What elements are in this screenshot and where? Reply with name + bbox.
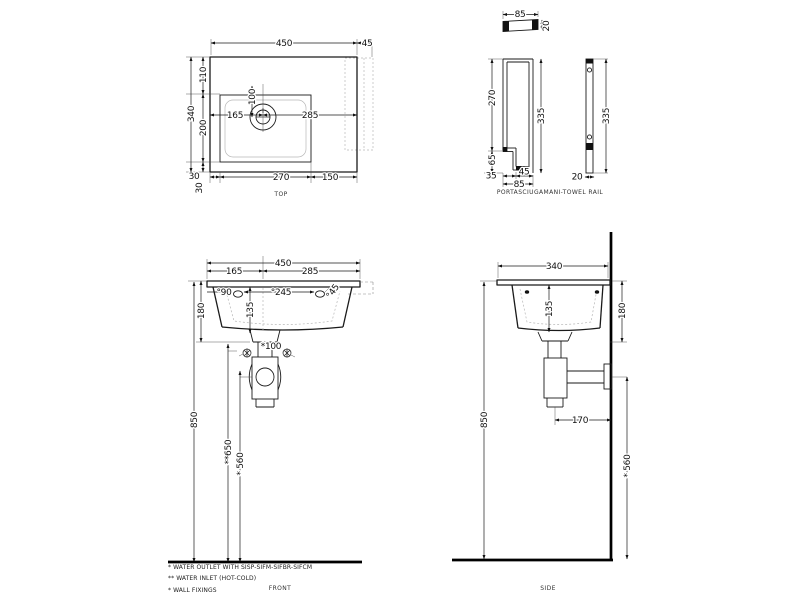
rail-side-profile: [503, 59, 533, 173]
dim-side-front-height: 180: [618, 302, 628, 319]
dim-top-right-section: 150: [322, 173, 339, 183]
dim-rail-bar-width: 85: [515, 10, 526, 20]
dim-top-bowl-width: 270: [273, 173, 290, 183]
front-view-label: FRONT: [269, 585, 292, 592]
footnote-water-inlet: ** WATER INLET (HOT-COLD): [168, 575, 256, 582]
top-extension-lines: [186, 39, 372, 183]
dim-top-back-to-bowl: 110: [199, 66, 209, 83]
front-view: *100 450 165 285 °90 °245 °45 180 135 85…: [168, 256, 373, 592]
dim-side-overall-depth: 340: [546, 262, 563, 272]
dim-front-hole-spacing: °245: [271, 288, 291, 298]
dim-front-tap-to-right: 285: [302, 267, 318, 277]
dim-top-tap-setback: 100: [248, 88, 258, 105]
dim-front-tap-from-left: 165: [226, 267, 242, 277]
top-view: 450 45 110 200 30 340 30 270 150 165 285…: [186, 39, 373, 198]
dim-front-inlet-height: **650: [224, 439, 234, 464]
dim-rail-bar-depth: 20: [572, 173, 583, 183]
fixing-hole-left: [234, 291, 243, 297]
dim-rail-front-leg: 270: [488, 89, 498, 106]
dim-rail-foot-offset: 35: [486, 172, 497, 182]
top-view-label: TOP: [273, 191, 287, 198]
dim-top-bowl-depth: 200: [199, 119, 209, 136]
dim-top-tap-to-right: 285: [302, 111, 318, 121]
rail-bar-section: [503, 20, 538, 32]
rail-screw-hole-top: [587, 68, 591, 72]
dim-rail-foot-width: 45: [519, 168, 530, 178]
dim-top-overall-depth: 340: [187, 105, 197, 122]
bowl-inner-radius-top: [225, 100, 306, 157]
dim-rail-foot-height: 65: [488, 155, 498, 166]
footnote-wall-fixings: * WALL FIXINGS: [168, 587, 217, 594]
dim-side-bowl-depth: 135: [545, 301, 555, 317]
dim-side-outlet-offset: 170: [572, 416, 589, 426]
wall-fixing-symbol-right: [283, 349, 295, 358]
dim-top-overall-width: 450: [276, 39, 293, 49]
rail-front-profile: [586, 59, 593, 173]
rail-screw-hole-bottom: [587, 135, 591, 139]
dim-front-hole-right: °45: [325, 283, 342, 301]
towel-rail-label: PORTASCIUGAMANI-TOWEL RAIL: [497, 189, 604, 196]
drain-trap-side: [538, 332, 612, 407]
wall-fixing-symbol-left: [239, 349, 251, 358]
drawing-canvas: 450 45 110 200 30 340 30 270 150 165 285…: [0, 0, 800, 600]
dim-front-rim-height: 850: [190, 411, 200, 428]
dim-front-hole-left: °90: [216, 288, 232, 298]
fixing-hole-side-back: [595, 290, 599, 294]
basin-rim-side: [497, 280, 610, 285]
bowl-outline-top: [220, 95, 311, 162]
dim-front-fixing-spacing: *100: [261, 342, 282, 352]
dim-front-bowl-depth: 135: [246, 302, 256, 318]
dim-top-tap-from-left: 165: [227, 111, 243, 121]
basin-technical-drawing: 450 45 110 200 30 340 30 270 150 165 285…: [0, 0, 800, 600]
fixing-hole-side-front: [525, 290, 529, 294]
dim-front-outlet-height: * 560: [236, 452, 246, 476]
dim-side-outlet-height: * 560: [623, 454, 633, 478]
dim-front-height: 180: [197, 302, 207, 319]
trap-inspection-cap: [256, 368, 274, 386]
dim-top-bowl-bottom-offset: 30: [189, 172, 200, 182]
towel-rail-hidden-top: [345, 58, 373, 150]
dim-rail-bar-thickness: 20: [542, 20, 552, 31]
dim-side-rim-height: 850: [480, 411, 490, 428]
dim-top-rail-overhang: 45: [362, 39, 373, 49]
fixing-hole-right: [316, 291, 325, 297]
side-view: 340 135 180 850 170 * 560 SIDE: [452, 232, 633, 592]
dim-rail-height-right: 335: [602, 108, 612, 124]
towel-rail-views: 85 20 270 65 335: [484, 10, 612, 196]
dim-front-overall-width: 450: [275, 259, 292, 269]
dim-top-bowl-left-offset: 30: [195, 182, 205, 193]
dim-rail-height-left: 335: [537, 108, 547, 124]
footnote-water-outlet: * WATER OUTLET WITH SISP-SIFM-SIFBR-SIFC…: [168, 564, 312, 571]
side-view-label: SIDE: [540, 585, 556, 592]
